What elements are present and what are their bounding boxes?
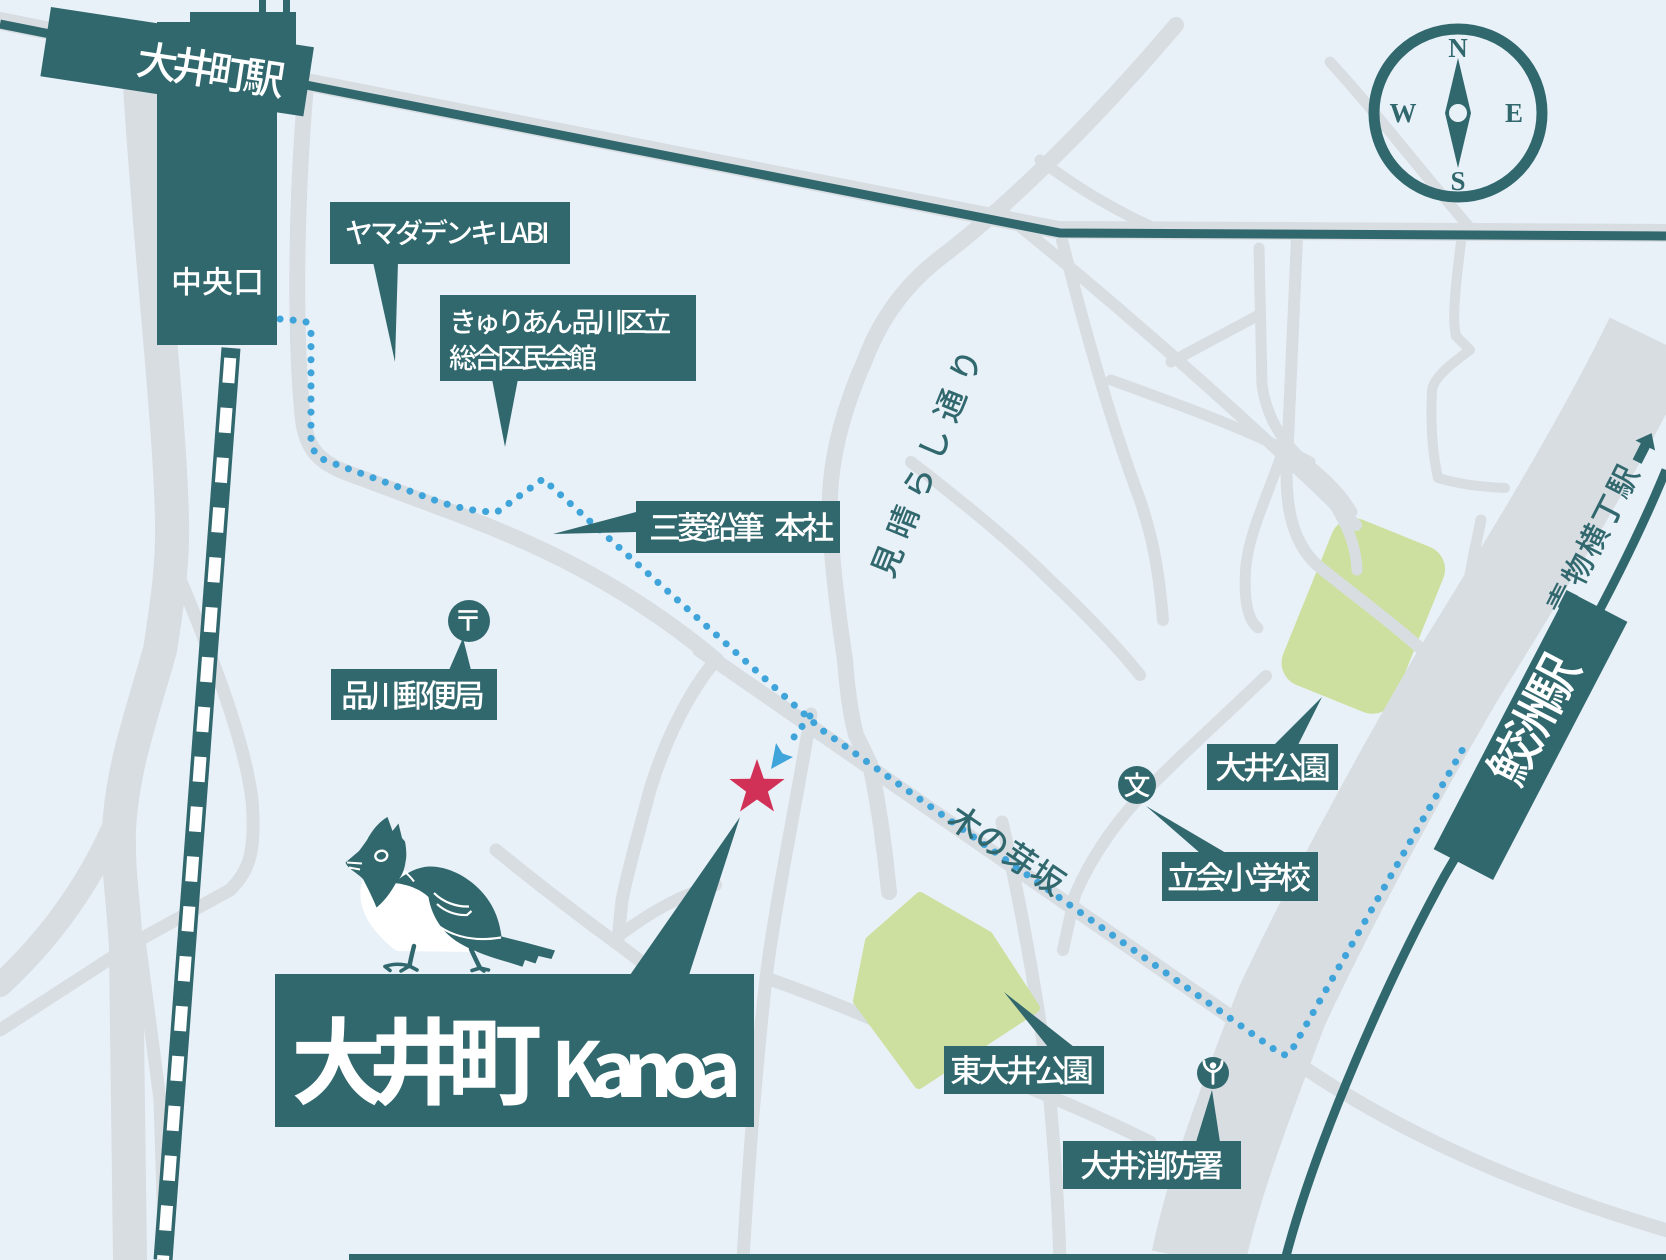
svg-text:S: S bbox=[1450, 166, 1465, 196]
svg-text:W: W bbox=[1390, 98, 1417, 128]
svg-text:N: N bbox=[1448, 33, 1468, 63]
svg-text:E: E bbox=[1505, 98, 1523, 128]
